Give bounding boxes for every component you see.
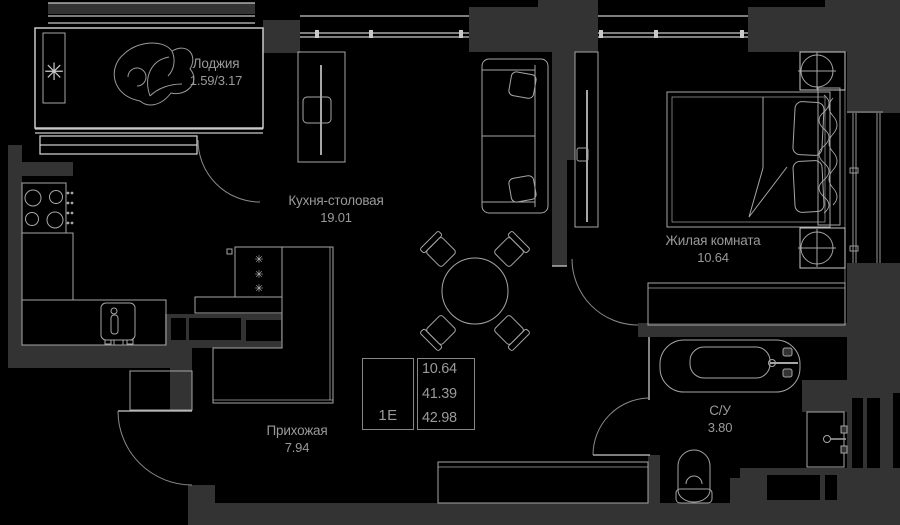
room-name: Кухня-столовая	[288, 192, 383, 209]
chair-icon	[492, 313, 530, 351]
entrance-door-arc	[118, 411, 192, 485]
kitchen-counter-bottom	[22, 300, 166, 345]
room-name: Лоджия	[190, 55, 242, 72]
hallway-label: Прихожая 7.94	[267, 422, 328, 456]
room-area: 3.80	[708, 419, 733, 436]
toilet-icon	[676, 450, 712, 503]
room-name: Прихожая	[267, 422, 328, 439]
ceiling-hatch-icon	[798, 228, 845, 268]
sink-icon	[101, 303, 135, 345]
tv-panel-icon	[575, 52, 598, 227]
bathroom-label: С/У 3.80	[708, 402, 733, 436]
windows	[35, 3, 748, 154]
wardrobe-clothes-icon	[818, 88, 840, 225]
loggia-snowflake-icon: ✳	[44, 59, 64, 86]
bedroom-window	[598, 16, 748, 37]
room-area: 10.64	[666, 249, 761, 266]
room-name: Жилая комната	[666, 232, 761, 249]
kitchen-window	[300, 16, 469, 37]
room-name: С/У	[708, 402, 733, 419]
loggia-window	[48, 16, 255, 23]
unit-type-cell: 1Е	[362, 358, 414, 430]
room-area: 7.94	[267, 439, 328, 456]
unit-info-table: 1Е 10.64 41.39 42.98	[362, 358, 475, 430]
washbasin-icon	[807, 412, 847, 467]
bathtub-icon	[660, 340, 800, 392]
chair-icon	[420, 231, 458, 269]
ceiling-hatch-icon	[798, 52, 845, 90]
counter-under-fridge	[195, 297, 282, 313]
chair-icon	[420, 313, 458, 351]
sofa-icon	[482, 59, 548, 213]
floor-plan: ✳	[0, 0, 900, 525]
area-living: 10.64	[422, 361, 472, 377]
dresser-icon	[648, 283, 845, 325]
area-partial: 41.39	[422, 386, 472, 402]
kitchen-counter-left	[22, 233, 73, 300]
living-room-label: Жилая комната 10.64	[666, 232, 761, 266]
chair-icon	[492, 231, 530, 269]
plant-icon	[114, 43, 194, 105]
bedroom-fixtures	[575, 52, 845, 325]
bed-icon	[667, 92, 830, 227]
unit-areas-cell: 10.64 41.39 42.98	[417, 358, 475, 430]
neighbor-structures	[847, 112, 883, 263]
dining-table-icon	[420, 231, 530, 351]
bedroom-door-arc	[572, 259, 638, 325]
tv-stand-icon	[298, 52, 345, 162]
loggia-label: Лоджия 1.59/3.17	[190, 55, 242, 89]
stove-icon	[22, 183, 66, 233]
balcony-door-arc	[198, 140, 260, 202]
room-area: 19.01	[288, 209, 383, 226]
room-area: 1.59/3.17	[190, 72, 242, 89]
walls	[8, 0, 900, 525]
floor-plan-drawing: ✳	[0, 0, 900, 525]
fridge-icon: ✳ ✳ ✳	[227, 247, 282, 297]
hallway-bench-icon	[438, 462, 648, 503]
svg-text:✳: ✳	[254, 254, 263, 266]
stove-knobs	[67, 192, 74, 225]
bathroom-door-arc	[593, 398, 650, 455]
loggia-balcony-window	[35, 129, 263, 133]
kitchen-label: Кухня-столовая 19.01	[288, 192, 383, 226]
svg-text:✳: ✳	[254, 269, 263, 281]
area-total: 42.98	[422, 410, 472, 426]
svg-text:✳: ✳	[254, 283, 263, 295]
